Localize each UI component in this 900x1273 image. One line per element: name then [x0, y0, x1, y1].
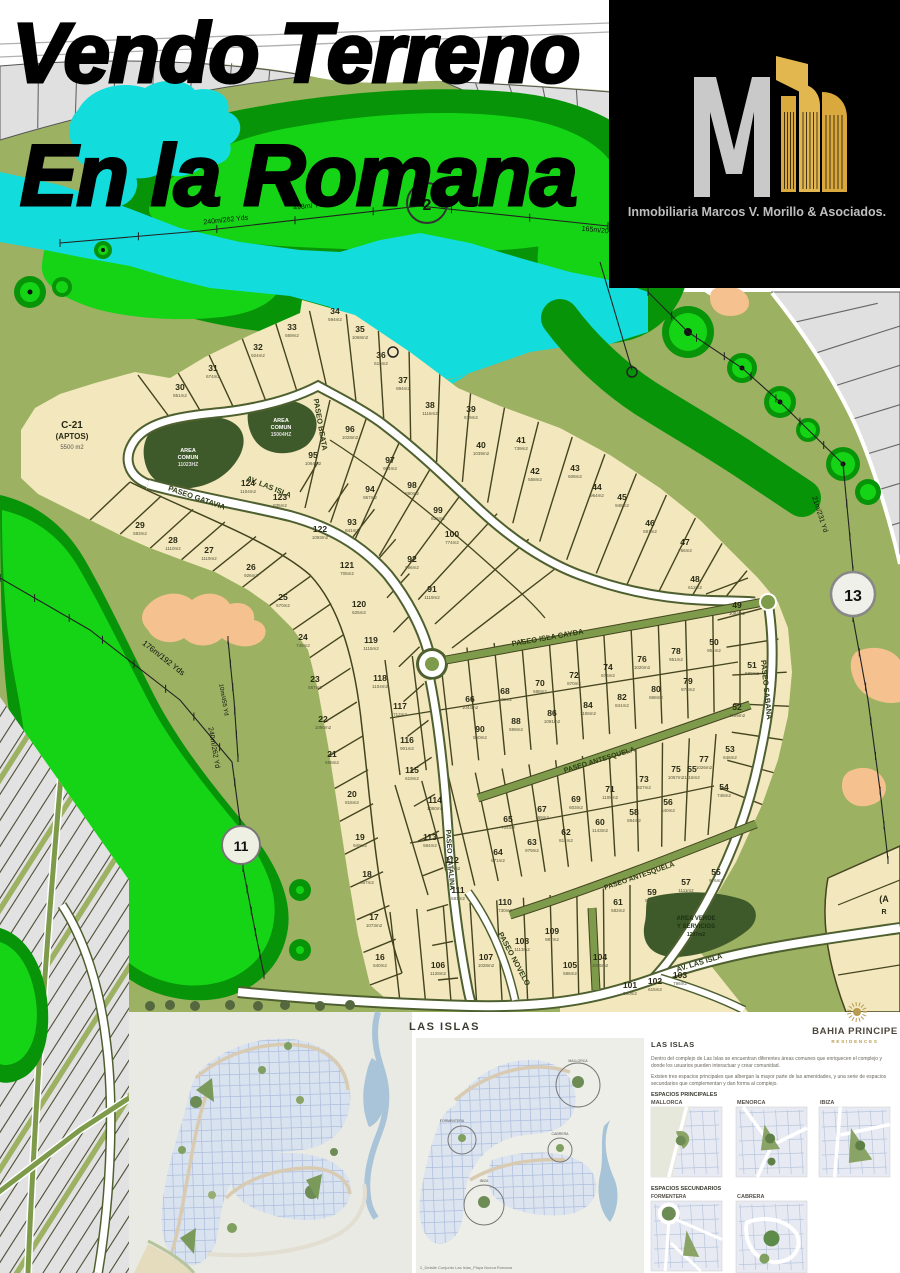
- svg-text:870m2: 870m2: [567, 681, 581, 686]
- svg-text:674m2: 674m2: [206, 374, 220, 379]
- svg-text:61: 61: [613, 897, 623, 907]
- svg-text:979m2: 979m2: [525, 848, 539, 853]
- svg-text:1080m2: 1080m2: [427, 806, 444, 811]
- svg-text:667m2: 667m2: [360, 880, 374, 885]
- svg-text:1020m2: 1020m2: [634, 665, 651, 670]
- svg-text:BAHIA PRINCIPE: BAHIA PRINCIPE: [812, 1026, 898, 1037]
- svg-text:746m2: 746m2: [296, 643, 310, 648]
- svg-text:96: 96: [345, 424, 355, 434]
- svg-text:619m2: 619m2: [405, 776, 419, 781]
- svg-text:52: 52: [732, 702, 742, 712]
- svg-text:30: 30: [175, 382, 185, 392]
- svg-text:FORMENTERA: FORMENTERA: [440, 1119, 465, 1123]
- svg-text:996m2: 996m2: [405, 565, 419, 570]
- svg-text:594m2: 594m2: [328, 317, 342, 322]
- svg-text:1068m2: 1068m2: [352, 335, 369, 340]
- svg-text:1111m2: 1111m2: [678, 888, 694, 893]
- svg-text:40: 40: [476, 440, 486, 450]
- svg-text:MENORCA: MENORCA: [737, 1100, 765, 1106]
- svg-text:964m2: 964m2: [590, 493, 604, 498]
- svg-text:22: 22: [318, 714, 328, 724]
- svg-text:33: 33: [287, 322, 297, 332]
- svg-text:110: 110: [498, 897, 512, 907]
- svg-text:38: 38: [425, 400, 435, 410]
- svg-text:73: 73: [639, 774, 649, 784]
- svg-text:603m2: 603m2: [569, 805, 583, 810]
- svg-text:688m2: 688m2: [533, 689, 547, 694]
- svg-text:949m2: 949m2: [353, 843, 367, 848]
- svg-text:1028m2: 1028m2: [342, 435, 359, 440]
- svg-text:78: 78: [671, 646, 681, 656]
- svg-text:AREA: AREA: [180, 448, 196, 454]
- svg-text:13: 13: [844, 588, 862, 605]
- svg-text:590m2: 590m2: [623, 991, 637, 996]
- svg-text:705m2: 705m2: [340, 571, 354, 576]
- svg-text:1005m2: 1005m2: [592, 963, 609, 968]
- svg-text:890m2: 890m2: [405, 491, 419, 496]
- svg-text:1097m2: 1097m2: [444, 866, 461, 871]
- svg-text:100: 100: [445, 529, 459, 539]
- svg-text:615m2: 615m2: [648, 987, 662, 992]
- svg-text:948m2: 948m2: [498, 697, 512, 702]
- svg-text:1084m2: 1084m2: [729, 611, 746, 616]
- svg-text:1119m2: 1119m2: [424, 595, 440, 600]
- svg-text:74: 74: [603, 662, 613, 672]
- svg-text:CABRERA: CABRERA: [737, 1194, 765, 1200]
- svg-text:816m2: 816m2: [345, 800, 359, 805]
- svg-text:Dentro del complejo de Las Isl: Dentro del complejo de Las Islas se encu…: [651, 1056, 882, 1062]
- svg-text:1093m2: 1093m2: [312, 535, 329, 540]
- svg-text:C-21: C-21: [61, 420, 83, 431]
- svg-text:45: 45: [617, 492, 627, 502]
- svg-text:43: 43: [570, 463, 580, 473]
- svg-text:774m2: 774m2: [445, 540, 459, 545]
- svg-text:868m2: 868m2: [649, 695, 663, 700]
- svg-text:878m2: 878m2: [681, 687, 695, 692]
- svg-text:106: 106: [431, 960, 445, 970]
- svg-text:55: 55: [711, 867, 721, 877]
- svg-text:704m2: 704m2: [501, 825, 515, 830]
- svg-text:1116m2: 1116m2: [422, 411, 438, 416]
- svg-text:67: 67: [537, 804, 547, 814]
- svg-text:LAS ISLAS: LAS ISLAS: [651, 1040, 695, 1049]
- svg-text:51: 51: [747, 660, 757, 670]
- svg-text:82: 82: [617, 692, 627, 702]
- svg-text:79: 79: [683, 676, 693, 686]
- svg-text:32: 32: [253, 342, 263, 352]
- svg-text:894m2: 894m2: [396, 386, 410, 391]
- svg-text:68: 68: [500, 686, 510, 696]
- svg-text:donde los usuarios pueden inte: donde los usuarios pueden interactuar y …: [651, 1063, 780, 1069]
- svg-text:62: 62: [561, 827, 571, 837]
- svg-text:111: 111: [451, 885, 465, 895]
- svg-text:(APTOS): (APTOS): [56, 432, 89, 441]
- svg-text:901m2: 901m2: [400, 746, 414, 751]
- svg-text:796m2: 796m2: [673, 981, 687, 986]
- svg-text:COMUN: COMUN: [271, 425, 292, 431]
- svg-text:RESIDENCES: RESIDENCES: [831, 1039, 878, 1044]
- svg-text:1297m2: 1297m2: [687, 932, 706, 938]
- svg-text:24: 24: [298, 632, 308, 642]
- svg-text:113: 113: [423, 832, 437, 842]
- svg-text:88: 88: [511, 716, 521, 726]
- svg-text:11023HZ: 11023HZ: [178, 462, 198, 468]
- svg-text:39: 39: [466, 404, 476, 414]
- svg-text:94: 94: [365, 484, 375, 494]
- svg-text:1044m2: 1044m2: [462, 705, 479, 710]
- svg-text:814m2: 814m2: [559, 838, 573, 843]
- svg-text:114: 114: [428, 795, 442, 805]
- svg-text:1119m2: 1119m2: [201, 556, 217, 561]
- svg-text:31: 31: [208, 363, 218, 373]
- svg-text:1057m2: 1057m2: [668, 775, 685, 780]
- svg-text:871m2: 871m2: [491, 858, 505, 863]
- svg-text:926m2: 926m2: [244, 573, 258, 578]
- svg-text:21: 21: [327, 749, 337, 759]
- svg-text:AREA: AREA: [273, 418, 289, 424]
- svg-text:41: 41: [516, 435, 526, 445]
- svg-text:599m2: 599m2: [509, 727, 523, 732]
- svg-text:841m2: 841m2: [615, 703, 629, 708]
- svg-text:122: 122: [313, 524, 327, 534]
- svg-text:119: 119: [364, 635, 378, 645]
- svg-text:594m2: 594m2: [627, 818, 641, 823]
- svg-text:72: 72: [569, 670, 579, 680]
- svg-text:957m2: 957m2: [363, 495, 377, 500]
- svg-text:109: 109: [545, 926, 559, 936]
- svg-text:FORMENTERA: FORMENTERA: [651, 1194, 687, 1200]
- svg-text:98: 98: [407, 480, 417, 490]
- svg-text:625m2: 625m2: [352, 610, 366, 615]
- svg-text:640m2: 640m2: [661, 808, 675, 813]
- svg-text:15004HZ: 15004HZ: [271, 432, 292, 438]
- svg-text:101: 101: [623, 980, 637, 990]
- svg-text:579m2: 579m2: [464, 415, 478, 420]
- svg-text:IBIZA: IBIZA: [820, 1100, 834, 1106]
- svg-text:766m2: 766m2: [678, 548, 692, 553]
- svg-text:583m2: 583m2: [133, 531, 147, 536]
- svg-text:107: 107: [479, 952, 493, 962]
- svg-text:951m2: 951m2: [669, 657, 683, 662]
- svg-text:IBIZA: IBIZA: [480, 1179, 489, 1183]
- svg-text:37: 37: [398, 375, 408, 385]
- svg-text:108: 108: [515, 936, 529, 946]
- svg-text:769m2: 769m2: [535, 815, 549, 820]
- svg-text:105: 105: [563, 960, 577, 970]
- svg-text:1104m2: 1104m2: [372, 684, 388, 689]
- svg-text:Inmobiliaria Marcos V. Morillo: Inmobiliaria Marcos V. Morillo & Asociad…: [628, 205, 886, 219]
- svg-text:27: 27: [204, 545, 214, 555]
- svg-text:656m2: 656m2: [325, 760, 339, 765]
- svg-text:712m2: 712m2: [393, 712, 407, 717]
- svg-text:924m2: 924m2: [251, 353, 265, 358]
- svg-text:COMUN: COMUN: [178, 455, 199, 461]
- svg-text:1113m2: 1113m2: [514, 947, 530, 952]
- svg-text:987m2: 987m2: [545, 937, 559, 942]
- svg-text:954m2: 954m2: [707, 648, 721, 653]
- svg-text:976m2: 976m2: [709, 878, 723, 883]
- svg-text:1143m2: 1143m2: [592, 828, 608, 833]
- svg-text:Existen tres espacios principa: Existen tres espacios principales que al…: [651, 1074, 887, 1080]
- svg-text:CABRERA: CABRERA: [552, 1132, 570, 1136]
- svg-text:58: 58: [629, 807, 639, 817]
- svg-text:116: 116: [400, 735, 414, 745]
- svg-text:612m2: 612m2: [688, 585, 702, 590]
- svg-text:35: 35: [355, 324, 365, 334]
- svg-text:92: 92: [407, 554, 417, 564]
- svg-text:11: 11: [234, 838, 249, 854]
- svg-text:581m2: 581m2: [451, 896, 465, 901]
- svg-text:59: 59: [647, 887, 657, 897]
- svg-text:1090m2: 1090m2: [315, 725, 332, 730]
- svg-text:841m2: 841m2: [345, 528, 359, 533]
- svg-text:48: 48: [690, 574, 700, 584]
- svg-text:90: 90: [475, 724, 485, 734]
- svg-text:17: 17: [369, 912, 379, 922]
- svg-text:1116m2: 1116m2: [684, 775, 700, 780]
- svg-text:1110m2: 1110m2: [165, 546, 181, 551]
- svg-text:1073m2: 1073m2: [366, 923, 383, 928]
- svg-text:118: 118: [373, 673, 387, 683]
- svg-text:1099m2: 1099m2: [729, 713, 746, 718]
- svg-text:84: 84: [583, 700, 593, 710]
- svg-text:77: 77: [699, 754, 709, 764]
- svg-text:19: 19: [355, 832, 365, 842]
- svg-text:608m2: 608m2: [568, 474, 582, 479]
- svg-text:29: 29: [135, 520, 145, 530]
- svg-text:20: 20: [347, 789, 357, 799]
- svg-text:675m2: 675m2: [601, 673, 615, 678]
- svg-text:2_Detalle Conjunto Las Islas_P: 2_Detalle Conjunto Las Islas_Playa Nueva…: [420, 1265, 513, 1270]
- svg-text:69: 69: [571, 794, 581, 804]
- svg-text:34: 34: [330, 306, 340, 316]
- svg-text:64: 64: [493, 847, 503, 857]
- svg-text:93: 93: [347, 517, 357, 527]
- svg-text:(A: (A: [879, 894, 889, 904]
- svg-text:586m2: 586m2: [563, 971, 577, 976]
- svg-text:44: 44: [592, 482, 602, 492]
- svg-text:18: 18: [362, 869, 372, 879]
- svg-text:95: 95: [308, 450, 318, 460]
- svg-text:1026m2: 1026m2: [696, 765, 713, 770]
- svg-text:827m2: 827m2: [637, 785, 651, 790]
- svg-text:54: 54: [719, 782, 729, 792]
- svg-text:837m2: 837m2: [645, 898, 659, 903]
- svg-text:560m2: 560m2: [473, 735, 487, 740]
- svg-text:R: R: [881, 909, 886, 916]
- svg-text:591m2: 591m2: [643, 529, 657, 534]
- svg-text:102: 102: [648, 976, 662, 986]
- svg-text:MALLORCA: MALLORCA: [651, 1100, 682, 1106]
- svg-text:76: 76: [637, 654, 647, 664]
- svg-text:567m2: 567m2: [308, 685, 322, 690]
- svg-text:99: 99: [433, 505, 443, 515]
- svg-text:60: 60: [595, 817, 605, 827]
- svg-text:1108m2: 1108m2: [602, 795, 618, 800]
- svg-text:1104m2: 1104m2: [240, 489, 256, 494]
- svg-text:646m2: 646m2: [723, 755, 737, 760]
- svg-text:Y SERVICIOS: Y SERVICIOS: [677, 924, 715, 930]
- svg-text:1106m2: 1106m2: [580, 711, 596, 716]
- svg-text:71: 71: [605, 784, 615, 794]
- svg-text:826m2: 826m2: [431, 516, 445, 521]
- svg-text:47: 47: [680, 537, 690, 547]
- svg-text:25: 25: [278, 592, 288, 602]
- svg-text:112: 112: [445, 855, 459, 865]
- svg-text:851m2: 851m2: [173, 393, 187, 398]
- svg-text:MALLORCA: MALLORCA: [568, 1059, 588, 1063]
- svg-text:640m2: 640m2: [373, 963, 387, 968]
- svg-text:ESPACIOS SECUNDARIOS: ESPACIOS SECUNDARIOS: [651, 1186, 722, 1192]
- svg-text:1128m2: 1128m2: [430, 971, 446, 976]
- svg-text:569m2: 569m2: [285, 333, 299, 338]
- svg-text:948m2: 948m2: [615, 503, 629, 508]
- svg-text:26: 26: [246, 562, 256, 572]
- svg-text:558m2: 558m2: [528, 477, 542, 482]
- svg-text:104: 104: [593, 952, 607, 962]
- svg-text:80: 80: [651, 684, 661, 694]
- svg-text:66: 66: [465, 694, 475, 704]
- svg-text:49: 49: [732, 600, 742, 610]
- svg-text:36: 36: [376, 350, 386, 360]
- svg-text:secundarios que complementan y: secundarios que complementan y dan forma…: [651, 1081, 778, 1087]
- svg-text:46: 46: [645, 518, 655, 528]
- svg-text:28: 28: [168, 535, 178, 545]
- svg-text:1039m2: 1039m2: [473, 451, 490, 456]
- svg-text:616m2: 616m2: [374, 361, 388, 366]
- svg-text:50: 50: [709, 637, 719, 647]
- svg-text:1028m2: 1028m2: [478, 963, 495, 968]
- svg-text:AREA VERDE: AREA VERDE: [676, 916, 715, 922]
- svg-text:23: 23: [310, 674, 320, 684]
- svg-text:120: 120: [352, 599, 366, 609]
- svg-text:580m2: 580m2: [745, 671, 759, 676]
- svg-text:584m2: 584m2: [423, 843, 437, 848]
- svg-text:103: 103: [673, 970, 687, 980]
- svg-text:16: 16: [375, 952, 385, 962]
- svg-text:75: 75: [671, 764, 681, 774]
- svg-text:115: 115: [405, 765, 419, 775]
- svg-text:65: 65: [503, 814, 513, 824]
- svg-text:117: 117: [393, 701, 407, 711]
- svg-text:42: 42: [530, 466, 540, 476]
- svg-text:121: 121: [340, 560, 354, 570]
- svg-text:5500 m2: 5500 m2: [60, 445, 84, 451]
- svg-text:63: 63: [527, 837, 537, 847]
- svg-text:56: 56: [663, 797, 673, 807]
- svg-text:97: 97: [385, 455, 395, 465]
- svg-text:ESPACIOS PRINCIPALES: ESPACIOS PRINCIPALES: [651, 1092, 717, 1098]
- svg-text:1091m2: 1091m2: [544, 719, 561, 724]
- svg-text:748m2: 748m2: [717, 793, 731, 798]
- svg-text:53: 53: [725, 744, 735, 754]
- svg-text:86: 86: [547, 708, 557, 718]
- svg-text:124: 124: [241, 478, 255, 488]
- svg-text:57: 57: [681, 877, 691, 887]
- svg-text:739m2: 739m2: [514, 446, 528, 451]
- svg-text:1115m2: 1115m2: [363, 646, 379, 651]
- svg-text:984m2: 984m2: [383, 466, 397, 471]
- svg-text:91: 91: [427, 584, 437, 594]
- svg-text:582m2: 582m2: [611, 908, 625, 913]
- svg-text:LAS ISLAS: LAS ISLAS: [409, 1021, 480, 1033]
- svg-text:1064m2: 1064m2: [305, 461, 322, 466]
- svg-text:730m2: 730m2: [498, 908, 512, 913]
- svg-text:70: 70: [535, 678, 545, 688]
- svg-text:570m2: 570m2: [276, 603, 290, 608]
- svg-text:835m2: 835m2: [273, 503, 287, 508]
- svg-text:123: 123: [273, 492, 287, 502]
